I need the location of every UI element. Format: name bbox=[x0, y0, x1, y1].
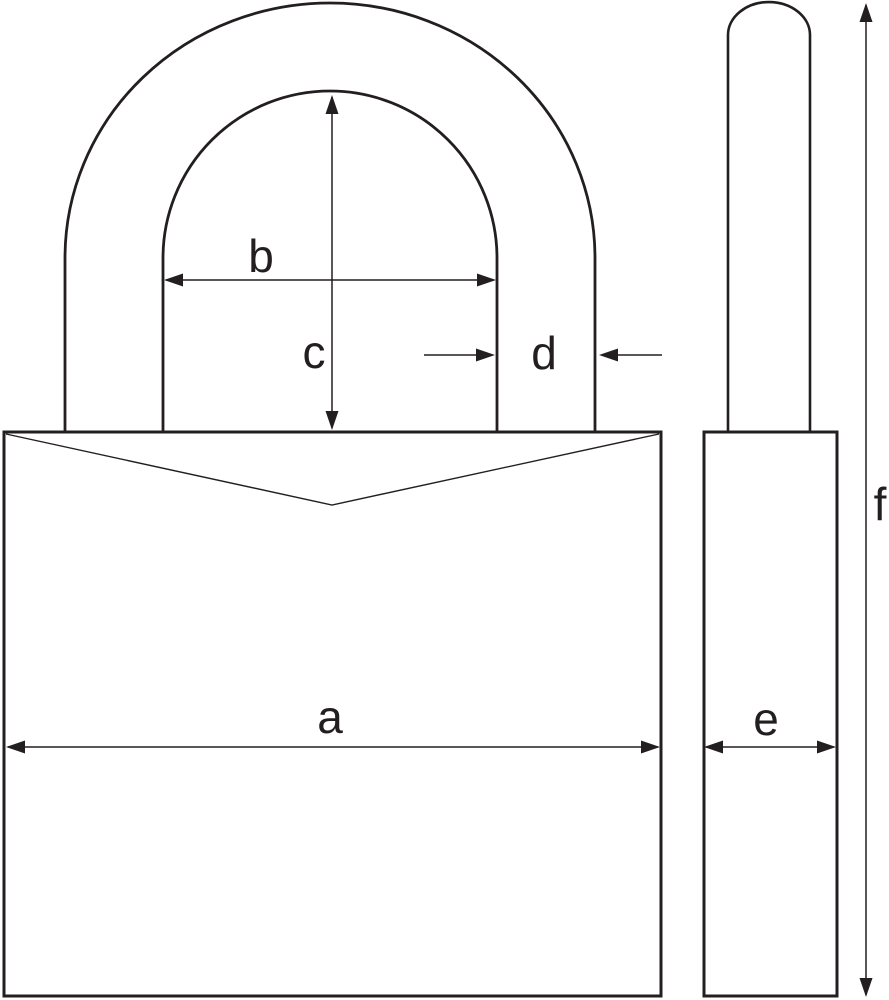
arrowhead-left-icon bbox=[599, 349, 618, 362]
dimension-label-f: f bbox=[874, 478, 887, 530]
dimension-label-c: c bbox=[303, 326, 326, 378]
arrowhead-up-icon bbox=[326, 95, 339, 114]
diagram-canvas: b c d a bbox=[0, 0, 889, 1000]
dimension-label-b: b bbox=[248, 230, 274, 282]
dimension-label-a: a bbox=[317, 691, 343, 743]
padlock-dimension-diagram: b c d a bbox=[0, 0, 889, 1000]
front-view: b c d a bbox=[4, 3, 662, 996]
arrowhead-left-icon bbox=[164, 274, 183, 287]
arrowhead-down-icon bbox=[326, 411, 339, 430]
arrowhead-right-icon bbox=[477, 274, 496, 287]
dimension-f: f bbox=[860, 3, 887, 997]
dimension-c: c bbox=[303, 95, 339, 430]
dimension-label-d: d bbox=[531, 327, 557, 379]
shackle-front-outline bbox=[65, 3, 595, 433]
shackle-side-outline bbox=[728, 2, 810, 433]
arrowhead-up-icon bbox=[860, 3, 873, 22]
arrowhead-down-icon bbox=[860, 978, 873, 997]
side-view: e bbox=[704, 2, 837, 996]
dimension-d: d bbox=[424, 327, 662, 379]
dimension-label-e: e bbox=[753, 693, 779, 745]
arrowhead-right-icon bbox=[476, 349, 495, 362]
dimension-b: b bbox=[164, 230, 496, 287]
